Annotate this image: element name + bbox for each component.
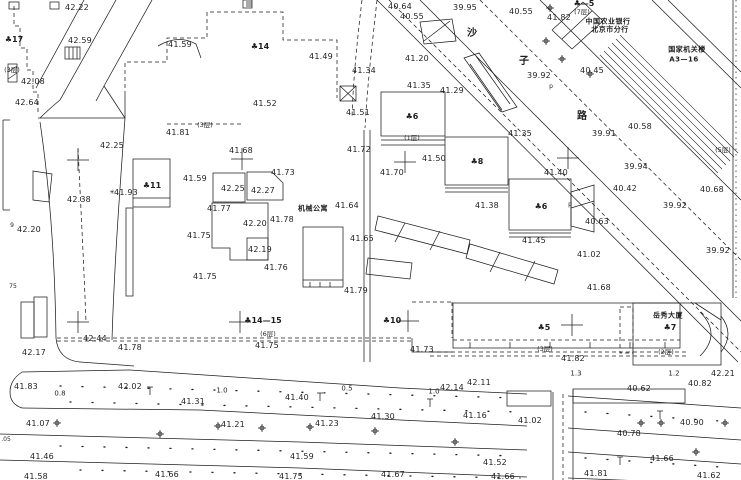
tree-symbol	[156, 430, 164, 438]
tree-symbol	[542, 37, 550, 45]
tree-symbol	[586, 70, 594, 78]
tree-symbol	[637, 419, 645, 427]
survey-cross-marker	[231, 148, 253, 170]
small-building	[34, 297, 47, 337]
survey-cross-marker	[67, 149, 89, 171]
survey-cross-marker	[561, 314, 583, 336]
survey-cross-marker	[397, 310, 419, 332]
narrow-building	[126, 208, 133, 296]
building-6b	[509, 179, 571, 230]
building-42-19	[247, 238, 268, 260]
stairs-symbol	[243, 0, 252, 8]
tree-symbol	[692, 448, 700, 456]
building-11	[133, 159, 170, 207]
building-8	[445, 137, 508, 185]
tree-symbol	[258, 424, 266, 432]
lamp-symbol	[617, 457, 623, 465]
tree-symbol	[657, 419, 665, 427]
tree-symbol	[546, 4, 554, 12]
survey-cross-marker	[394, 151, 416, 173]
site-plan-drawing	[0, 0, 741, 480]
small-building	[50, 2, 59, 9]
survey-site-plan: 42.2242.59♣17(3层)42.0842.6441.5941.81(3层…	[0, 0, 741, 480]
building-42-20	[212, 203, 268, 260]
apartment-slab	[303, 227, 343, 287]
survey-cross-marker	[67, 311, 89, 333]
lamp-symbol	[427, 399, 433, 407]
bank-building	[552, 2, 603, 49]
tree-symbol	[53, 419, 61, 427]
underpass-entrance	[573, 389, 685, 403]
tree-symbol	[558, 55, 566, 63]
topleft-parcels	[3, 0, 201, 340]
building-42-27	[247, 172, 283, 200]
tree-symbol	[306, 423, 314, 431]
tree-symbol	[214, 422, 222, 430]
survey-cross-marker	[229, 311, 251, 333]
small-building	[21, 302, 34, 338]
diagonal-road	[377, 0, 741, 362]
building-42-25	[213, 173, 245, 202]
stairs-symbol	[65, 47, 80, 59]
tree-symbol	[721, 419, 729, 427]
building-5	[453, 303, 680, 348]
south-buildings	[430, 303, 728, 365]
tree-symbol	[371, 427, 379, 435]
building-6	[381, 92, 445, 136]
lamp-symbol	[657, 411, 663, 419]
tree-symbol	[451, 438, 459, 446]
lamp-symbol	[317, 393, 323, 401]
survey-cross-marker	[557, 147, 579, 169]
residential-compound	[56, 0, 453, 366]
bottom-roads	[0, 370, 741, 480]
